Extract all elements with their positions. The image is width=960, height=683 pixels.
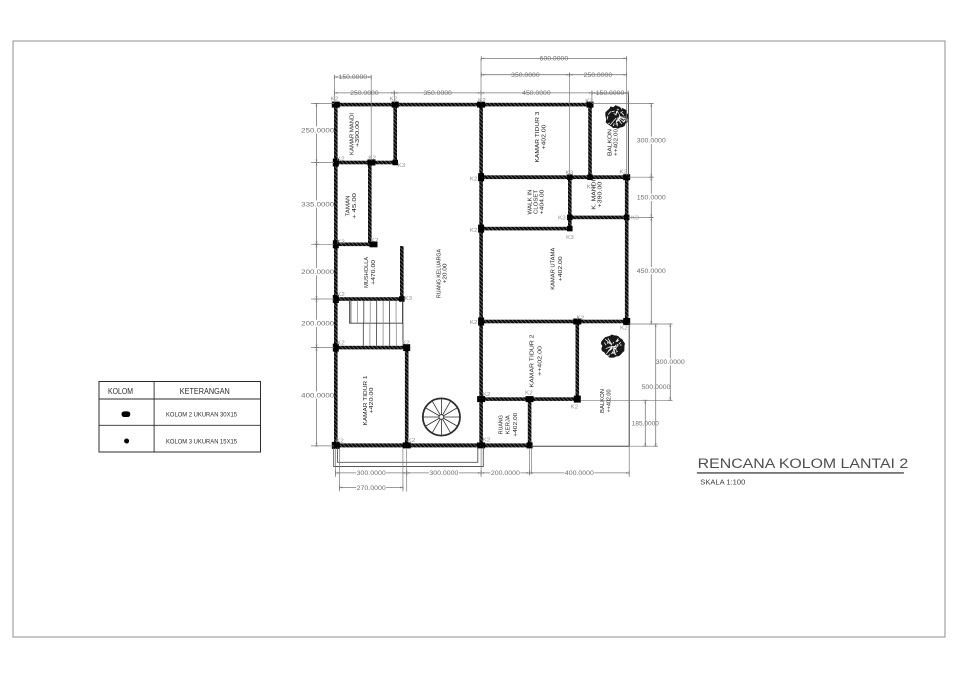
svg-text:KAMAR TIDUR 1: KAMAR TIDUR 1 bbox=[363, 376, 369, 426]
svg-text:200.0000: 200.0000 bbox=[301, 321, 335, 328]
svg-text:500.0000: 500.0000 bbox=[642, 384, 672, 391]
svg-text:K2: K2 bbox=[525, 391, 533, 397]
svg-text:++402.00: ++402.00 bbox=[607, 390, 613, 413]
svg-text:335.0000: 335.0000 bbox=[301, 201, 335, 208]
svg-text:KERJA: KERJA bbox=[506, 415, 512, 434]
svg-text:K3: K3 bbox=[566, 170, 574, 176]
svg-text:K3: K3 bbox=[404, 296, 412, 302]
svg-text:KOLOM: KOLOM bbox=[108, 386, 133, 396]
svg-text:K2: K2 bbox=[336, 439, 344, 445]
svg-text:K2: K2 bbox=[571, 404, 579, 410]
svg-text:K2: K2 bbox=[337, 239, 345, 245]
svg-text:CLOSET: CLOSET bbox=[534, 190, 540, 214]
svg-text:KETERANGAN: KETERANGAN bbox=[180, 386, 230, 396]
svg-text:K2: K2 bbox=[402, 341, 410, 347]
svg-text:K2: K2 bbox=[577, 315, 585, 321]
svg-text:+402.00: +402.00 bbox=[513, 413, 519, 437]
svg-text:K2: K2 bbox=[470, 177, 478, 183]
svg-text:300.0000: 300.0000 bbox=[656, 359, 686, 366]
svg-text:150.0000: 150.0000 bbox=[596, 90, 625, 97]
svg-text:K2: K2 bbox=[337, 341, 345, 347]
svg-text:450.0000: 450.0000 bbox=[522, 90, 551, 97]
svg-text:300.0000: 300.0000 bbox=[637, 138, 667, 145]
svg-text:350.0000: 350.0000 bbox=[511, 72, 540, 79]
svg-text:K2: K2 bbox=[390, 97, 398, 103]
svg-text:++402.00: ++402.00 bbox=[614, 129, 620, 156]
svg-text:+ 45.00: + 45.00 bbox=[352, 193, 358, 219]
svg-text:270.0000: 270.0000 bbox=[357, 485, 387, 492]
svg-text:K2: K2 bbox=[585, 99, 593, 105]
svg-text:+404.00: +404.00 bbox=[540, 190, 546, 215]
svg-text:+402.00: +402.00 bbox=[541, 125, 547, 150]
svg-text:450.0000: 450.0000 bbox=[637, 268, 667, 275]
svg-text:KAMAR TIDUR 2: KAMAR TIDUR 2 bbox=[530, 335, 536, 388]
svg-text:K2: K2 bbox=[408, 438, 416, 444]
svg-text:K2: K2 bbox=[483, 392, 491, 398]
svg-text:K2: K2 bbox=[337, 156, 345, 162]
svg-text:300.0000: 300.0000 bbox=[357, 470, 387, 477]
svg-text:250.0000: 250.0000 bbox=[584, 72, 613, 79]
svg-text:+20.00: +20.00 bbox=[443, 264, 449, 284]
svg-text:++402.00: ++402.00 bbox=[538, 346, 544, 376]
svg-text:250.0000: 250.0000 bbox=[301, 127, 335, 134]
svg-text:K2: K2 bbox=[470, 320, 478, 326]
svg-text:BALKON: BALKON bbox=[600, 389, 606, 413]
svg-text:BALKON: BALKON bbox=[607, 129, 613, 156]
svg-text:K2: K2 bbox=[483, 438, 491, 444]
svg-text:K3: K3 bbox=[631, 215, 639, 221]
svg-text:K3: K3 bbox=[566, 235, 574, 241]
svg-text:400.0000: 400.0000 bbox=[301, 392, 335, 399]
svg-text:+402.00: +402.00 bbox=[558, 256, 564, 281]
svg-text:K2: K2 bbox=[371, 238, 379, 244]
svg-text:250.0000: 250.0000 bbox=[350, 90, 379, 97]
svg-text:200.0000: 200.0000 bbox=[301, 269, 335, 276]
svg-text:KAMAR TIDUR 3: KAMAR TIDUR 3 bbox=[535, 112, 541, 163]
svg-text:K3: K3 bbox=[558, 215, 566, 221]
svg-text:K3: K3 bbox=[398, 163, 406, 169]
svg-text:RUANG: RUANG bbox=[499, 415, 505, 434]
svg-text:K2: K2 bbox=[478, 98, 486, 104]
svg-text:400.0000: 400.0000 bbox=[565, 470, 595, 477]
svg-text:K. MANDI: K. MANDI bbox=[591, 179, 597, 209]
svg-text:KOLOM 3 UKURAN 15X15: KOLOM 3 UKURAN 15X15 bbox=[166, 438, 238, 445]
svg-text:300.0000: 300.0000 bbox=[429, 470, 459, 477]
svg-text:+390.00: +390.00 bbox=[355, 121, 361, 147]
svg-text:+420.00: +420.00 bbox=[369, 388, 375, 414]
svg-text:+390.00: +390.00 bbox=[598, 182, 604, 208]
svg-text:K2: K2 bbox=[470, 228, 478, 234]
svg-text:+470.00: +470.00 bbox=[371, 260, 377, 285]
svg-text:K2: K2 bbox=[331, 97, 339, 103]
svg-text:K2: K2 bbox=[620, 326, 628, 332]
svg-text:RENCANA KOLOM LANTAI 2: RENCANA KOLOM LANTAI 2 bbox=[698, 456, 909, 472]
svg-text:MUSHOLLA: MUSHOLLA bbox=[364, 257, 370, 288]
svg-text:150.0000: 150.0000 bbox=[339, 74, 368, 81]
svg-text:K2: K2 bbox=[368, 155, 376, 161]
svg-text:KOLOM 2 UKURAN 30X15: KOLOM 2 UKURAN 30X15 bbox=[166, 411, 238, 418]
svg-text:KAMAR UTAMA: KAMAR UTAMA bbox=[551, 248, 557, 290]
svg-text:K2: K2 bbox=[620, 170, 628, 176]
svg-text:600.0000: 600.0000 bbox=[540, 56, 569, 63]
svg-text:K2: K2 bbox=[337, 292, 345, 298]
svg-text:150.0000: 150.0000 bbox=[637, 195, 667, 202]
svg-text:200.0000: 200.0000 bbox=[491, 470, 521, 477]
svg-text:185.0000: 185.0000 bbox=[632, 420, 660, 427]
svg-text:SKALA 1:100: SKALA 1:100 bbox=[700, 478, 745, 487]
svg-text:TAMAN: TAMAN bbox=[345, 196, 351, 217]
svg-text:350.0000: 350.0000 bbox=[423, 90, 452, 97]
